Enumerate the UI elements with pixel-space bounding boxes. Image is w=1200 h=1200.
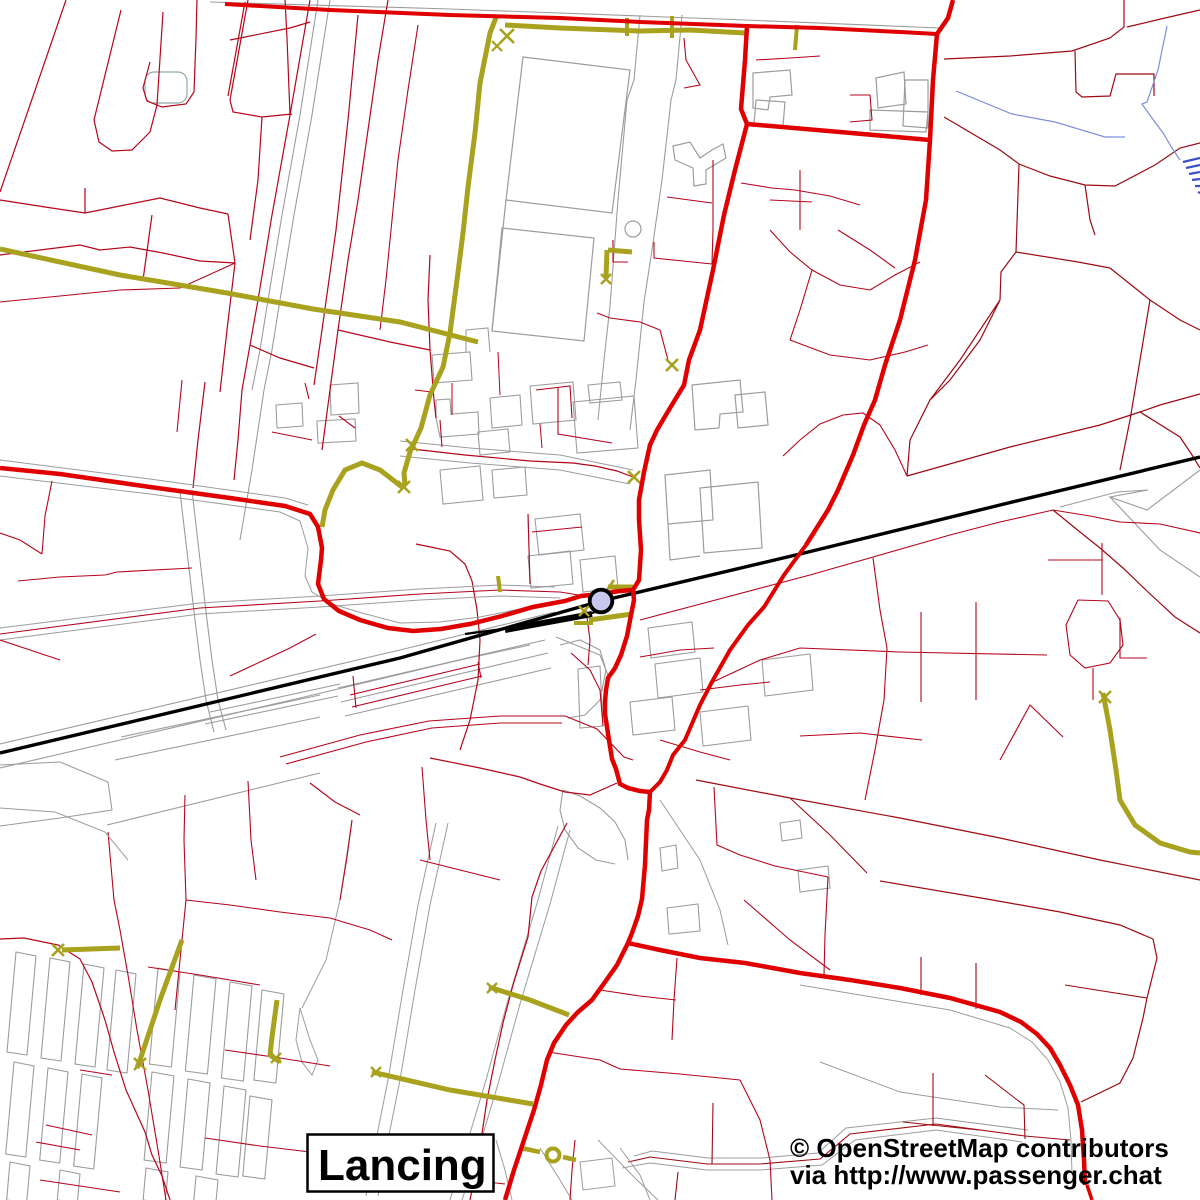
svg-text:Lancing: Lancing [318,1141,487,1190]
svg-text:via http://www.passenger.chat: via http://www.passenger.chat [790,1160,1162,1190]
svg-text:© OpenStreetMap contributors: © OpenStreetMap contributors [790,1133,1169,1163]
